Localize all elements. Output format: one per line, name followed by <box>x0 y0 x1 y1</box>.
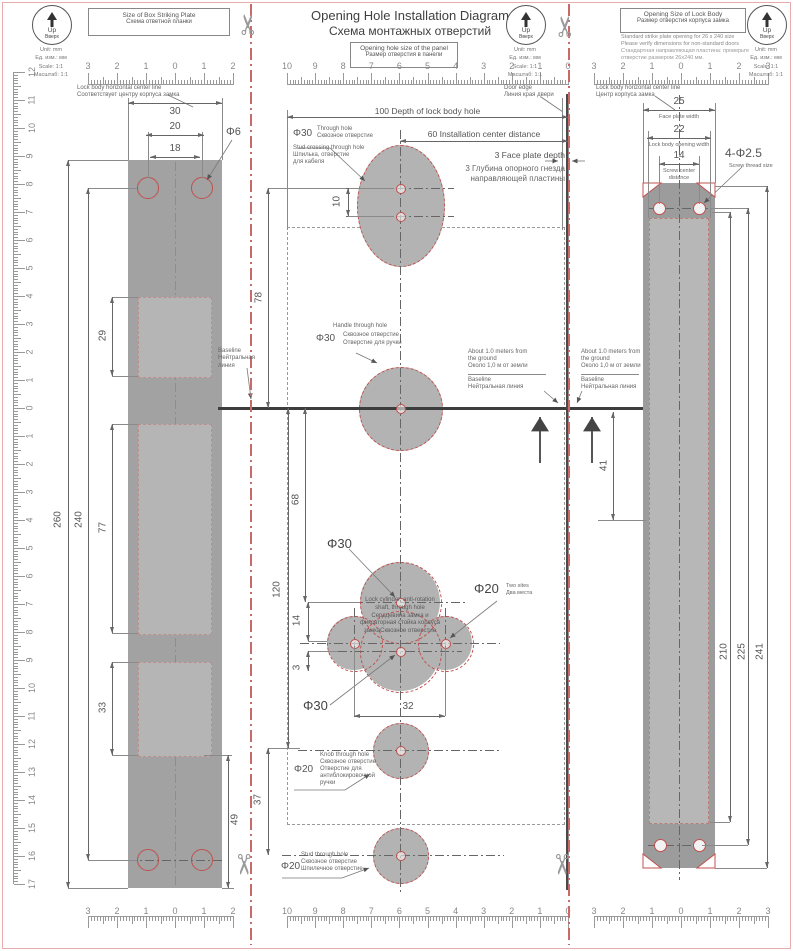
ruler-tick <box>594 917 595 928</box>
ruler-tick <box>14 374 18 375</box>
dim-line-68 <box>305 408 306 602</box>
cylinder-label-line: Lock cylinder, anti-rotation <box>340 597 460 605</box>
ruler-tick <box>14 537 18 538</box>
ruler-tick <box>14 862 18 863</box>
ruler-tick <box>722 80 723 84</box>
ruler-tick <box>14 828 25 829</box>
ruler-tick <box>515 917 516 921</box>
ruler-tick <box>14 453 18 454</box>
ruler-tick <box>14 223 18 224</box>
ruler-tick <box>687 80 688 84</box>
extension-line <box>715 868 767 869</box>
extension-line <box>222 888 234 889</box>
ruler-tick <box>318 80 319 84</box>
ruler-tick <box>487 80 488 84</box>
ruler-number: 9 <box>313 906 318 916</box>
middle-subtitle-en: Opening hole size of the panel <box>351 45 457 52</box>
ruler-tick <box>517 917 518 921</box>
ruler-tick <box>111 80 112 84</box>
ruler-tick <box>600 917 601 921</box>
ruler-tick <box>658 917 659 921</box>
ruler-number: 5 <box>425 906 430 916</box>
ruler-tick <box>14 75 18 76</box>
ruler-tick <box>14 526 18 527</box>
ruler-tick <box>704 80 705 84</box>
ruler-tick <box>678 80 679 84</box>
ruler-tick <box>14 713 18 714</box>
ruler-tick <box>14 94 18 95</box>
ruler-tick <box>762 80 763 84</box>
dim-line-32 <box>354 716 445 717</box>
ruler-tick <box>14 285 18 286</box>
ruler-tick <box>14 598 18 599</box>
ruler-tick <box>172 80 173 84</box>
ruler-tick <box>14 260 18 261</box>
ruler-tick <box>751 80 752 84</box>
ruler-tick <box>467 80 468 84</box>
ruler-tick <box>444 917 445 921</box>
ruler-tick <box>14 271 18 272</box>
ruler-tick <box>14 282 21 283</box>
ruler-tick <box>14 178 18 179</box>
ruler-tick <box>512 917 513 928</box>
phi20-right-label: Φ20 <box>474 581 499 598</box>
dim-label-78: 78 <box>254 283 265 313</box>
ruler-tick <box>14 414 18 415</box>
ruler-tick <box>765 80 766 84</box>
ruler-tick <box>472 917 473 921</box>
page-title: Opening Hole Installation Diagram <box>210 8 610 25</box>
ruler-tick <box>14 867 18 868</box>
ruler-number: 10 <box>282 61 292 71</box>
ruler-tick <box>14 825 18 826</box>
ruler-tick <box>14 106 18 107</box>
ruler-tick <box>14 296 25 297</box>
ruler-tick <box>546 80 547 84</box>
extension-line <box>710 208 748 209</box>
ruler-tick <box>14 150 18 151</box>
ruler-tick <box>447 917 448 921</box>
ruler-tick <box>129 80 130 84</box>
up-label: Up <box>748 27 786 34</box>
ruler-tick <box>762 917 763 921</box>
screw-thread-size-label: Screw thread size <box>729 163 773 170</box>
up-orientation-icon: Up Вверх <box>747 5 787 45</box>
ruler-tick <box>14 341 18 342</box>
extension-line <box>268 748 300 749</box>
face-plate-width-label: Face plate width <box>649 114 709 121</box>
ruler-tick <box>531 917 532 921</box>
ruler-tick <box>14 500 18 501</box>
ruler-tick <box>632 80 633 84</box>
ruler-tick <box>14 125 18 126</box>
ruler-tick <box>14 850 18 851</box>
ruler-tick <box>14 736 18 737</box>
ruler-tick <box>498 917 499 924</box>
ruler-tick <box>340 80 341 84</box>
ruler-tick <box>14 842 21 843</box>
ruler-tick <box>105 80 106 84</box>
ruler-tick <box>290 80 291 84</box>
extension-line <box>148 132 149 178</box>
ruler-tick <box>413 917 414 924</box>
ruler-tick <box>14 268 25 269</box>
label-divider <box>468 374 546 375</box>
scale-label-ru: Масштаб: 1:1 <box>496 71 554 79</box>
ruler-tick <box>554 917 555 924</box>
ruler-tick <box>14 156 25 157</box>
dim-line-3 <box>308 651 309 671</box>
ruler-tick <box>14 568 18 569</box>
ruler-tick <box>730 80 731 84</box>
ruler-tick <box>635 80 636 84</box>
ruler-tick <box>219 77 220 84</box>
ruler-tick <box>14 318 18 319</box>
ruler-number: 3 <box>25 321 35 326</box>
ruler-tick <box>719 917 720 921</box>
ruler-tick <box>14 797 18 798</box>
label-divider <box>581 374 639 375</box>
ruler-tick <box>14 198 21 199</box>
ruler-tick <box>326 80 327 84</box>
ruler-tick <box>14 192 18 193</box>
ruler-tick <box>14 416 18 417</box>
ruler-tick <box>478 917 479 921</box>
ruler-tick <box>425 80 426 84</box>
ruler-number: 10 <box>27 123 37 133</box>
ruler-tick <box>304 80 305 84</box>
ruler-tick <box>198 917 199 921</box>
dim-line-37 <box>268 748 269 855</box>
ruler-tick <box>14 864 18 865</box>
middle-subtitle-box: Opening hole size of the panel Размер от… <box>350 42 458 68</box>
ruler-tick <box>14 593 18 594</box>
plate-cutout-bottom <box>138 662 212 757</box>
ruler-tick <box>739 917 740 928</box>
ruler-tick <box>143 917 144 921</box>
extension-line <box>112 376 138 377</box>
ruler-tick <box>534 80 535 84</box>
ruler-tick <box>523 917 524 921</box>
ruler-tick <box>736 80 737 84</box>
ruler-tick <box>14 187 18 188</box>
ruler-tick <box>14 134 18 135</box>
ruler-tick <box>14 576 25 577</box>
ruler-tick <box>309 917 310 921</box>
ruler-tick <box>14 559 18 560</box>
ruler-tick <box>649 917 650 921</box>
ruler-tick <box>343 917 344 928</box>
ruler-tick <box>14 226 21 227</box>
ruler-tick <box>221 917 222 921</box>
ruler-number: 7 <box>25 209 35 214</box>
ruler-tick <box>366 917 367 921</box>
ruler-tick <box>626 80 627 84</box>
knob-hole-l5: ручки <box>320 780 335 788</box>
ruler-tick <box>140 917 141 921</box>
ruler-tick <box>626 917 627 921</box>
ruler-tick <box>529 917 530 921</box>
ruler-tick <box>707 917 708 921</box>
dim-label-14r: 14 <box>663 150 695 161</box>
ruler-tick <box>14 486 18 487</box>
ruler-tick <box>422 80 423 84</box>
dim-line-20 <box>146 135 204 136</box>
ruler-tick <box>436 80 437 84</box>
ruler-tick <box>335 80 336 84</box>
ruler-tick <box>14 349 18 350</box>
ruler-tick <box>14 610 18 611</box>
ruler-tick <box>14 240 25 241</box>
ruler-tick <box>14 173 18 174</box>
extension-line <box>112 297 138 298</box>
legend-left: Unit: mm Ед. изм.: мм Scale: 1:1 Масштаб… <box>22 46 80 79</box>
ruler-tick <box>14 444 18 445</box>
ruler-tick <box>14 554 18 555</box>
ruler-tick <box>14 831 18 832</box>
ruler-tick <box>614 80 615 84</box>
center-line <box>300 643 500 644</box>
ruler-tick <box>14 456 18 457</box>
extension-line <box>222 98 223 160</box>
legend-middle: Unit: mm Ед. изм.: мм Scale: 1:1 Масштаб… <box>496 46 554 79</box>
ruler-tick <box>385 917 386 924</box>
ruler-tick <box>428 73 429 84</box>
ruler-tick <box>397 917 398 921</box>
ruler-tick <box>14 108 18 109</box>
ruler-tick <box>14 478 21 479</box>
door-edge-label-ru: Линия края двери <box>504 92 554 100</box>
ruler-number: 9 <box>25 153 35 158</box>
ruler-tick <box>14 195 18 196</box>
ruler-number: 0 <box>678 61 683 71</box>
extension-line <box>112 662 138 663</box>
dim-label-29: 29 <box>98 321 109 351</box>
ruler-tick <box>14 794 18 795</box>
ruler-tick <box>664 80 665 84</box>
ruler-tick <box>14 596 18 597</box>
extension-line <box>128 98 129 160</box>
ruler-tick <box>175 917 176 928</box>
ruler-tick <box>14 467 18 468</box>
ruler-tick <box>675 80 676 84</box>
ruler-tick <box>399 917 400 928</box>
ruler-number: 7 <box>25 601 35 606</box>
ruler-tick <box>321 917 322 921</box>
dim-line-18 <box>150 157 200 158</box>
ruler-bottom-left: 321012 <box>88 916 234 929</box>
ruler-tick <box>172 917 173 921</box>
ruler-tick <box>207 80 208 84</box>
cylinder-label: Lock cylinder, anti-rotation shaft, thro… <box>340 597 460 636</box>
ruler-tick <box>201 917 202 921</box>
ruler-tick <box>14 461 18 462</box>
extension-line <box>68 888 128 889</box>
ruler-tick <box>617 80 618 84</box>
ruler-tick <box>346 80 347 84</box>
ruler-tick <box>14 145 18 146</box>
ruler-tick <box>14 811 18 812</box>
ruler-tick <box>357 917 358 924</box>
ruler-tick <box>14 293 18 294</box>
ruler-number: 4 <box>453 906 458 916</box>
ruler-tick <box>307 80 308 84</box>
ruler-tick <box>195 80 196 84</box>
ruler-tick <box>557 80 558 84</box>
ruler-tick <box>14 237 18 238</box>
ruler-tick <box>14 724 18 725</box>
ruler-tick <box>405 917 406 921</box>
ruler-tick <box>14 162 18 163</box>
ruler-tick <box>14 584 18 585</box>
ruler-tick <box>551 80 552 84</box>
ruler-tick <box>14 520 25 521</box>
scale-label: Scale: 1:1 <box>737 63 793 71</box>
ruler-tick <box>14 475 18 476</box>
ruler-tick <box>192 917 193 921</box>
ruler-tick <box>523 80 524 84</box>
ruler-number: 6 <box>25 237 35 242</box>
ruler-tick <box>632 917 633 921</box>
ruler-tick <box>509 917 510 921</box>
ruler-tick <box>14 372 18 373</box>
ruler-tick <box>14 472 18 473</box>
ruler-number: 3 <box>591 906 596 916</box>
ruler-tick <box>727 917 728 921</box>
about-ground-right-ru: Около 1,0 м от земли <box>581 363 641 371</box>
ruler-tick <box>751 917 752 921</box>
ruler-tick <box>472 80 473 84</box>
ruler-tick <box>134 80 135 84</box>
ruler-tick <box>450 80 451 84</box>
handle-hole-label-ru: Сквозное отверстие <box>343 332 399 340</box>
ruler-tick <box>366 80 367 84</box>
phi30-bottom-label: Φ30 <box>303 698 328 715</box>
ruler-tick <box>506 917 507 921</box>
scale-label: Scale: 1:1 <box>496 63 554 71</box>
ruler-tick <box>606 917 607 921</box>
ruler-tick <box>646 917 647 921</box>
ruler-tick <box>759 917 760 921</box>
ruler-tick <box>478 80 479 84</box>
ruler-tick <box>537 917 538 921</box>
ruler-tick <box>178 80 179 84</box>
ruler-tick <box>560 80 561 84</box>
ruler-tick <box>14 814 21 815</box>
handle-hole-dia: Φ30 <box>316 332 335 345</box>
ruler-tick <box>14 621 18 622</box>
ruler-tick <box>14 89 18 90</box>
ruler-number: 2 <box>114 61 119 71</box>
ruler-tick <box>495 80 496 84</box>
ruler-tick <box>14 635 18 636</box>
ruler-tick <box>14 688 25 689</box>
ruler-tick <box>14 425 18 426</box>
ruler-tick <box>175 73 176 84</box>
dim-line-29 <box>112 297 113 376</box>
dim-line-120 <box>288 408 289 748</box>
ruler-tick <box>503 80 504 84</box>
ruler-tick <box>416 917 417 921</box>
ruler-tick <box>14 274 18 275</box>
ruler-tick <box>14 304 18 305</box>
ruler-tick <box>14 708 18 709</box>
ruler-tick <box>152 917 153 921</box>
ruler-tick <box>221 80 222 84</box>
ruler-tick <box>698 80 699 84</box>
ruler-tick <box>14 352 25 353</box>
dim-label-68: 68 <box>291 485 302 515</box>
ruler-tick <box>14 234 18 235</box>
ruler-tick <box>198 80 199 84</box>
ruler-tick <box>481 917 482 921</box>
ruler-tick <box>132 917 133 924</box>
ruler-tick <box>603 80 604 84</box>
ruler-tick <box>14 248 18 249</box>
ruler-tick <box>461 80 462 84</box>
scale-label-ru: Масштаб: 1:1 <box>22 71 80 79</box>
right-title-en: Opening Size of Lock Body <box>621 11 745 18</box>
ruler-tick <box>14 148 18 149</box>
dim-label-37: 37 <box>253 785 264 815</box>
extension-line <box>112 633 138 634</box>
handle-hole-label-en: Handle through hole <box>333 323 387 331</box>
ruler-tick <box>698 917 699 921</box>
ruler-tick <box>14 691 18 692</box>
left-title-box: Size of Box Striking Plate Схема ответно… <box>88 8 230 36</box>
ruler-tick <box>388 80 389 84</box>
cylinder-label-line: shaft, through hole <box>340 605 460 613</box>
ruler-tick <box>669 917 670 921</box>
ruler-tick <box>388 917 389 921</box>
ruler-tick <box>14 366 21 367</box>
ruler-number: 12 <box>27 739 37 749</box>
ruler-tick <box>14 257 18 258</box>
ruler-tick <box>14 738 18 739</box>
ruler-tick <box>14 215 18 216</box>
ruler-number: 9 <box>313 61 318 71</box>
dim-line-14r <box>659 164 699 165</box>
scale-label-ru: Масштаб: 1:1 <box>737 71 793 79</box>
ruler-tick <box>380 917 381 921</box>
up-label-ru: Вверх <box>748 34 786 40</box>
face-plate-depth-label: 3 Face plate depth <box>490 150 565 161</box>
ruler-tick <box>14 786 21 787</box>
ruler-tick <box>137 917 138 921</box>
extension-line <box>445 646 446 716</box>
ruler-tick <box>210 917 211 921</box>
ruler-tick <box>14 218 18 219</box>
extension-line <box>287 110 288 230</box>
ruler-tick <box>14 612 18 613</box>
ruler-tick <box>354 917 355 921</box>
ruler-tick <box>216 917 217 921</box>
ruler-tick <box>14 204 18 205</box>
unit-label-ru: Ед. изм.: мм <box>496 54 554 62</box>
ruler-tick <box>14 360 18 361</box>
ruler-tick <box>383 80 384 84</box>
ruler-tick <box>14 288 18 289</box>
ruler-tick <box>352 80 353 84</box>
ruler-tick <box>14 565 18 566</box>
ruler-tick <box>126 80 127 84</box>
ruler-left-vertical: 1211109876543210123456789101112131415161… <box>13 72 28 884</box>
ruler-tick <box>450 917 451 921</box>
ruler-tick <box>155 917 156 921</box>
ruler-tick <box>655 80 656 84</box>
ruler-tick <box>756 917 757 921</box>
ruler-tick <box>14 514 18 515</box>
